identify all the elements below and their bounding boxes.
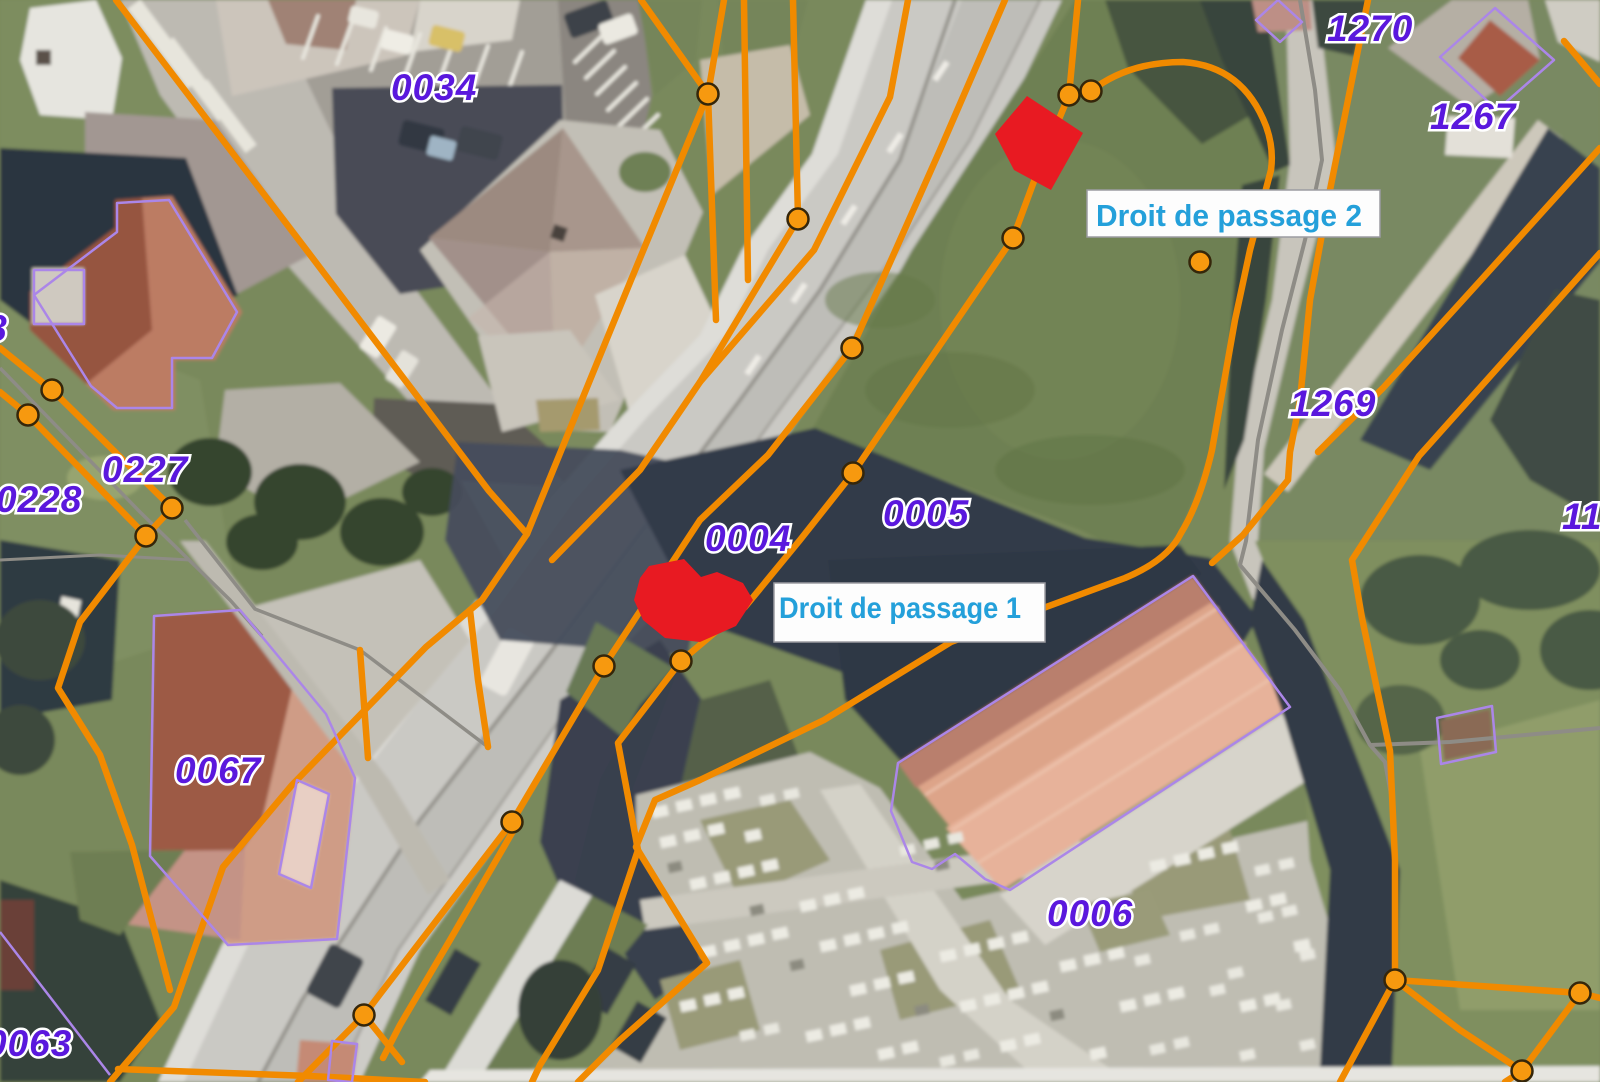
svg-text:Droit de passage 2: Droit de passage 2 (1096, 198, 1362, 233)
svg-text:1270: 1270 (1327, 8, 1413, 49)
svg-text:0034: 0034 (391, 67, 477, 108)
svg-text:0067: 0067 (175, 750, 263, 791)
svg-text:0004: 0004 (705, 518, 791, 559)
svg-text:0228: 0228 (0, 479, 82, 520)
svg-text:1269: 1269 (1290, 383, 1376, 424)
svg-text:0006: 0006 (1047, 893, 1133, 934)
svg-text:Droit de passage 1: Droit de passage 1 (779, 592, 1021, 625)
svg-text:1267: 1267 (1430, 96, 1518, 137)
svg-text:0005: 0005 (883, 493, 970, 534)
svg-text:8: 8 (0, 308, 8, 349)
svg-text:0227: 0227 (102, 449, 190, 490)
svg-text:11: 11 (1562, 496, 1600, 537)
svg-text:0063: 0063 (0, 1023, 72, 1064)
